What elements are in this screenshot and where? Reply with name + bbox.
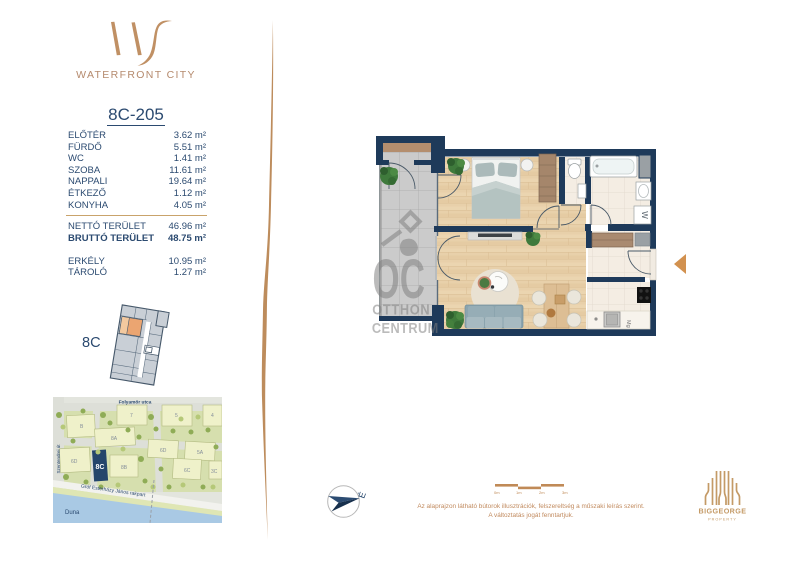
svg-text:W: W: [640, 211, 649, 219]
svg-text:3m: 3m: [562, 490, 568, 495]
svg-text:0m: 0m: [494, 490, 500, 495]
svg-text:1m: 1m: [516, 490, 522, 495]
svg-text:BIGGEORGE: BIGGEORGE: [699, 507, 747, 516]
svg-text:CENTRUM: CENTRUM: [372, 319, 439, 336]
svg-text:2m: 2m: [539, 490, 545, 495]
svg-text:PROPERTY: PROPERTY: [708, 518, 737, 522]
svg-text:OTTHON: OTTHON: [372, 301, 430, 318]
svg-text:Mg: Mg: [625, 320, 631, 328]
